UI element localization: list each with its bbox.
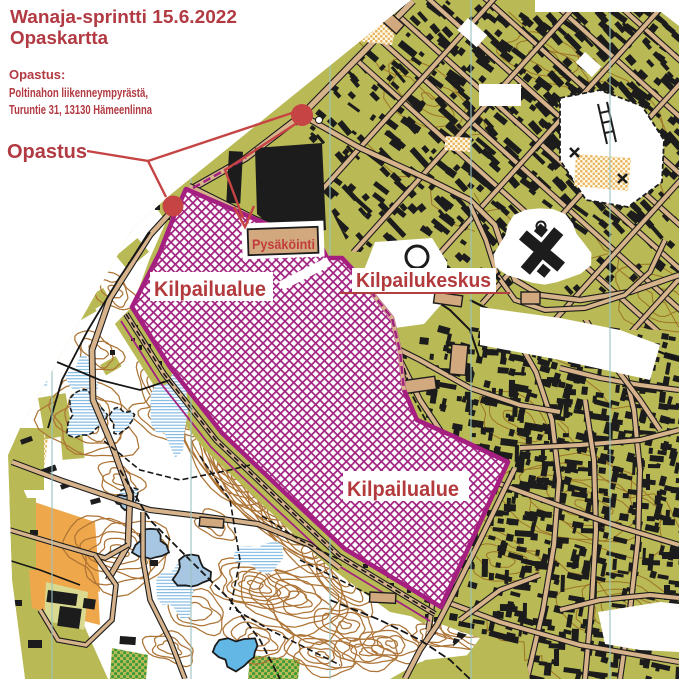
svg-text:Kilpailukeskus: Kilpailukeskus <box>356 270 491 292</box>
svg-text:Opaskartta: Opaskartta <box>10 28 109 48</box>
svg-text:Poltinahon liikenneympyrästä,: Poltinahon liikenneympyrästä, <box>9 85 148 100</box>
svg-text:Pysäköinti: Pysäköinti <box>252 236 315 252</box>
svg-text:Wanaja-sprintti 15.6.2022: Wanaja-sprintti 15.6.2022 <box>10 7 237 27</box>
svg-text:Opastus:: Opastus: <box>9 67 65 82</box>
svg-text:Kilpailualue: Kilpailualue <box>347 478 459 501</box>
svg-text:Opastus: Opastus <box>7 141 87 163</box>
svg-text:Kilpailualue: Kilpailualue <box>154 278 266 301</box>
svg-text:Turuntie 31, 13130 Hämeenlinna: Turuntie 31, 13130 Hämeenlinna <box>9 102 153 117</box>
